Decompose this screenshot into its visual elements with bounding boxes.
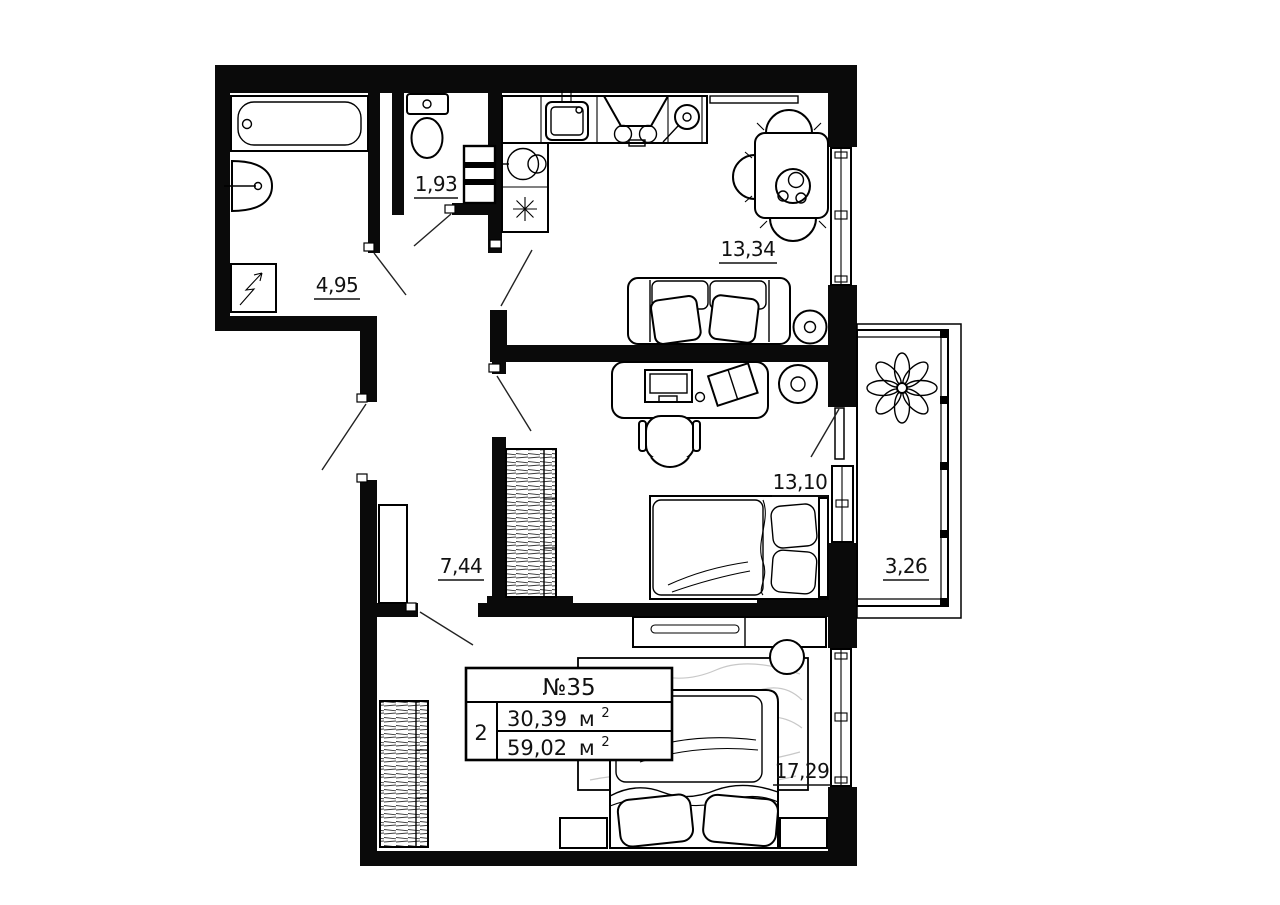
door-jamb-marker — [489, 364, 500, 372]
info-stamp: №35 2 30,39 м 2 59,02 м 2 — [466, 668, 672, 760]
door-jamb-marker — [490, 240, 501, 248]
wall-shelf — [710, 96, 798, 103]
bathroom-door-swing — [374, 253, 406, 295]
toilet-area-label: 1,93 — [415, 172, 458, 196]
floor-lamp — [794, 311, 827, 344]
glazing-post — [940, 598, 948, 606]
sofa-pillow — [650, 295, 702, 345]
vent-shaft-box — [464, 146, 495, 203]
vent-shaft-bar — [464, 179, 495, 185]
balcony-door-leaf — [835, 408, 844, 459]
bathroom: 4,95 — [224, 96, 368, 312]
stool — [770, 640, 804, 674]
asterisk-icon — [513, 197, 537, 221]
kitchen-living-room: 13,34 — [502, 90, 851, 345]
total-area-value: 59,02 — [507, 736, 567, 760]
wall-left-lower — [360, 480, 377, 866]
hallway: 7,44 — [379, 505, 484, 603]
master-window — [831, 649, 851, 786]
toilet-room: 1,93 — [407, 94, 495, 203]
chair — [733, 155, 755, 199]
single-bed — [650, 496, 828, 599]
bedroom-door-swing — [497, 376, 531, 431]
wardrobe-body — [506, 449, 556, 597]
bed-frame — [650, 496, 828, 599]
door-jamb-marker — [445, 205, 455, 213]
wall-top — [215, 65, 857, 93]
wall-bathroom-right — [368, 93, 380, 253]
toilet-bowl — [412, 118, 443, 158]
wall-hall-right-lower — [492, 437, 506, 615]
office-chair — [639, 416, 700, 467]
wall-hall-left-upper — [360, 331, 377, 402]
chair-armrest — [693, 421, 700, 451]
area-unit-exp: 2 — [601, 706, 609, 721]
balcony: 3,26 — [857, 324, 961, 618]
floor-plan-drawing: 3,26 4,95 1,93 — [0, 0, 1280, 905]
entry-door-swing — [322, 404, 366, 470]
sofa-pillow — [708, 294, 759, 343]
wardrobe — [380, 701, 428, 847]
chair — [770, 218, 816, 241]
bedroom: 13,10 — [506, 362, 853, 599]
electrical-panel-icon — [231, 264, 276, 312]
dining-table — [755, 133, 828, 218]
bathroom-area-label: 4,95 — [316, 273, 359, 297]
living-area: 30,39 м 2 — [507, 706, 610, 731]
wardrobe-body — [380, 701, 428, 847]
door-jamb-marker — [364, 243, 374, 251]
bed-headboard — [819, 498, 828, 597]
room-count: 2 — [474, 721, 487, 745]
wardrobe — [506, 449, 556, 597]
pillow — [702, 794, 779, 847]
wall-right-seg2 — [828, 285, 857, 407]
balcony-window — [832, 466, 853, 542]
glazing-post — [940, 462, 948, 470]
wall-right-seg4 — [828, 787, 857, 866]
wall-master-top-thick-a — [487, 596, 573, 617]
living-area-value: 30,39 — [507, 707, 567, 731]
rug-outer — [779, 365, 817, 403]
master-door-swing — [420, 612, 473, 645]
washbasin — [224, 161, 272, 211]
wall-bottom — [360, 851, 857, 866]
refrigerator-icon — [513, 197, 537, 221]
wall-right-seg3 — [828, 543, 857, 648]
kitchen-area-label: 13,34 — [721, 237, 776, 261]
chair-armrest — [639, 421, 646, 451]
door-jamb-marker — [357, 394, 367, 402]
glazing-post — [940, 396, 948, 404]
toilet-door-swing — [414, 214, 451, 246]
wall-kitchen-bottom — [490, 345, 857, 362]
vent-shaft — [464, 146, 495, 203]
balcony-door — [811, 408, 844, 459]
desk — [612, 362, 768, 418]
pillow — [617, 793, 695, 847]
chair — [766, 110, 812, 133]
nightstand — [780, 818, 827, 848]
lamp-shade — [794, 311, 827, 344]
area-unit: м — [579, 736, 595, 760]
glazing-post — [940, 530, 948, 538]
glazing-post — [940, 330, 948, 338]
master-area-label: 17,29 — [775, 759, 830, 783]
pan-body — [675, 105, 699, 129]
wall-left-bathroom — [215, 65, 230, 331]
bathtub — [231, 96, 368, 151]
round-rug — [779, 365, 817, 403]
sofa — [628, 278, 790, 345]
wall-wc-left — [392, 93, 404, 215]
vent-shaft-bar — [464, 162, 495, 168]
kitchen-window — [831, 148, 851, 285]
area-unit: м — [579, 707, 595, 731]
door-jamb-marker — [357, 474, 367, 482]
nightstand — [560, 818, 607, 848]
door-jamb-marker — [406, 603, 416, 611]
kitchen-door-swing — [501, 250, 532, 306]
floor-plan: 3,26 4,95 1,93 — [0, 0, 1280, 905]
toilet-tank — [407, 94, 448, 114]
plate — [776, 169, 810, 203]
wall-wc-bottom-stub — [452, 203, 502, 215]
apartment-number: №35 — [542, 675, 595, 701]
area-unit-exp: 2 — [601, 735, 609, 750]
total-area: 59,02 м 2 — [507, 735, 610, 760]
wall-bathroom-bottom — [215, 316, 377, 331]
monitor — [645, 370, 692, 402]
bedroom-area-label: 13,10 — [773, 470, 828, 494]
electrical-panel-box — [231, 264, 276, 312]
hallway-area-label: 7,44 — [440, 554, 483, 578]
balcony-area-label: 3,26 — [885, 554, 928, 578]
chair-seat — [646, 416, 694, 460]
wall-right-seg1 — [828, 65, 857, 147]
toilet — [407, 94, 448, 158]
chair-back — [651, 457, 689, 467]
hall-cabinet — [379, 505, 407, 603]
